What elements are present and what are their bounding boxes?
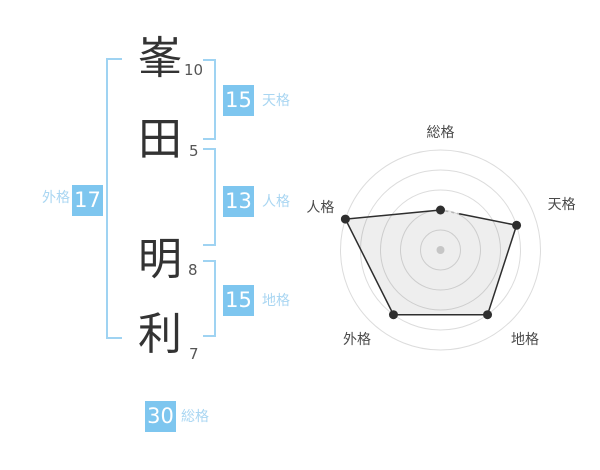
name-char: 田: [136, 118, 184, 162]
gaikaku-label: 外格: [30, 191, 70, 205]
radar-data-area: [345, 210, 516, 315]
radar-axis-label: 人格: [306, 200, 334, 216]
tenkaku-label: 天格: [262, 94, 290, 108]
stroke-count: 7: [189, 347, 199, 362]
stroke-count: 10: [184, 63, 203, 78]
radar-axis-label: 天格: [548, 197, 576, 213]
radar-center-dot: [437, 246, 445, 254]
tenkaku-bracket: [203, 59, 216, 140]
radar-data-point: [483, 310, 492, 319]
jinkaku-bracket: [203, 148, 216, 246]
radar-chart: 総格天格地格外格人格: [295, 110, 595, 365]
jinkaku-value-badge: 13: [223, 186, 254, 217]
stroke-count: 8: [188, 263, 198, 278]
radar-axis-label: 総格: [427, 125, 455, 141]
name-char: 峯: [136, 37, 184, 81]
radar-axis-label: 外格: [343, 332, 371, 348]
tenkaku-value-badge: 15: [223, 85, 254, 116]
soukaku-value-badge: 30: [145, 401, 176, 432]
name-fortune-panel: 峯 田 明 利 10 5 8 7 15 天格 13 人格 15 地格 外格 17…: [0, 0, 600, 470]
gaikaku-bracket: [106, 58, 122, 339]
name-char: 明: [136, 238, 184, 282]
soukaku-label: 総格: [181, 410, 209, 424]
chikaku-label: 地格: [262, 294, 290, 308]
radar-data-point: [512, 221, 521, 230]
name-char: 利: [136, 313, 184, 357]
jinkaku-label: 人格: [262, 195, 290, 209]
radar-data-point: [389, 310, 398, 319]
radar-data-point: [436, 206, 445, 215]
chikaku-value-badge: 15: [223, 285, 254, 316]
chikaku-bracket: [203, 260, 216, 337]
radar-axis-label: 地格: [511, 332, 539, 348]
radar-data-point: [341, 215, 350, 224]
gaikaku-value-badge: 17: [72, 185, 103, 216]
stroke-count: 5: [189, 144, 199, 159]
